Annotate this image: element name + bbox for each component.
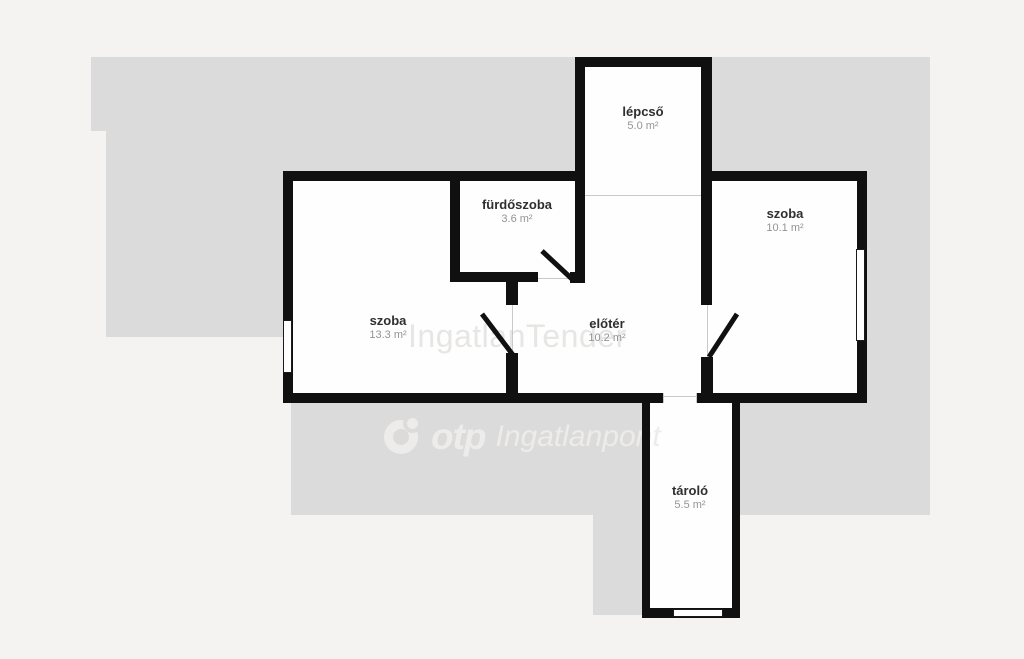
wall-bath-left [450, 171, 460, 282]
room-label-bathroom: fürdőszoba 3.6 m² [482, 197, 552, 227]
otp-brand-text: otp [431, 416, 486, 458]
room-area: 5.0 m² [622, 120, 663, 134]
room-area: 3.6 m² [482, 213, 552, 227]
wall-main-bottom-left [283, 393, 663, 403]
window-left [283, 320, 292, 373]
wall-divider-stub [506, 282, 518, 305]
room-area: 10.2 m² [588, 332, 625, 346]
room-name: szoba [369, 313, 406, 329]
watermark-otp: otp Ingatlanpont [383, 416, 661, 458]
room-name: fürdőszoba [482, 197, 552, 213]
room-area: 10.1 m² [766, 222, 803, 236]
room-label-room-left: szoba 13.3 m² [369, 313, 406, 343]
otp-logo-icon [383, 417, 423, 457]
opening-line-right-door [707, 305, 708, 357]
room-label-hall: előtér 10.2 m² [588, 316, 625, 346]
room-name: lépcső [622, 104, 663, 120]
floor-storage-doorway [663, 393, 697, 403]
room-name: szoba [766, 206, 803, 222]
room-name: tároló [672, 483, 708, 499]
otp-suffix-text: Ingatlanpont [496, 420, 661, 454]
room-label-storage: tároló 5.5 m² [672, 483, 708, 513]
silhouette-lower-column [593, 515, 643, 615]
opening-line-staircase [585, 195, 701, 196]
wall-bath-bottom [450, 272, 538, 282]
room-area: 5.5 m² [672, 499, 708, 513]
wall-main-top-left [283, 171, 585, 181]
window-storage [673, 609, 723, 617]
wall-right-room-lower [701, 357, 713, 403]
room-label-room-right: szoba 10.1 m² [766, 206, 803, 236]
window-right [856, 249, 865, 341]
opening-line-storage-top [663, 396, 697, 397]
wall-bath-corner [570, 272, 585, 283]
wall-main-top-right [701, 171, 867, 181]
wall-main-bottom-right [697, 393, 867, 403]
wall-staircase-left [575, 57, 585, 283]
opening-line-bath-door [538, 278, 572, 279]
wall-staircase-top [575, 57, 712, 67]
floorplan-canvas: { "watermarks": { "center": "IngatlanTen… [0, 0, 1024, 659]
wall-staircase-right [701, 57, 712, 305]
room-area: 13.3 m² [369, 329, 406, 343]
wall-divider-lower [506, 353, 518, 403]
wall-storage-right [732, 403, 740, 618]
room-label-staircase: lépcső 5.0 m² [622, 104, 663, 134]
wall-storage-left [642, 403, 650, 618]
room-name: előtér [588, 316, 625, 332]
opening-line-storage-left [663, 393, 664, 403]
silhouette-top-strip [91, 57, 930, 131]
